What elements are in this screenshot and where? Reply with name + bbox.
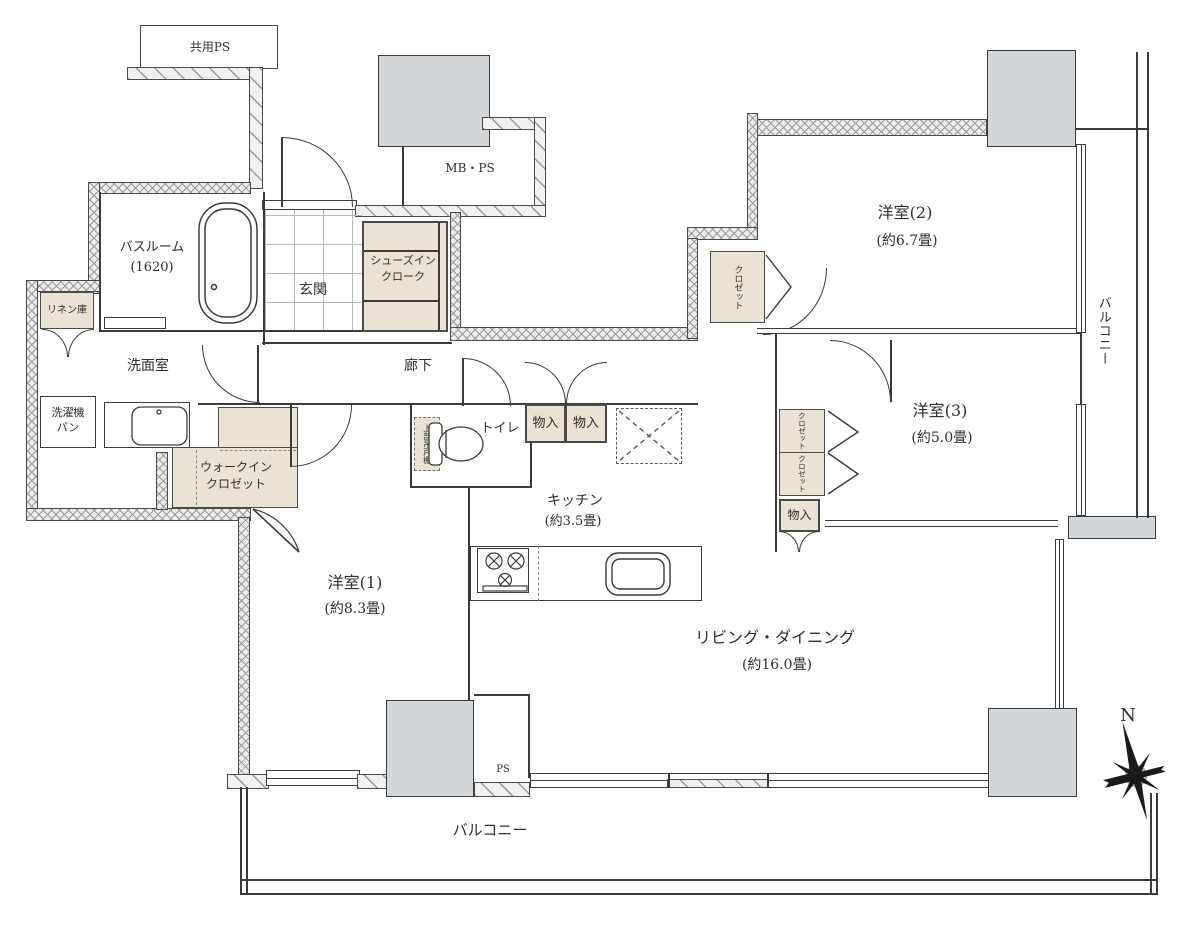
balcony-bottom-rail-b [240,893,1158,895]
compass-icon [1090,714,1176,828]
compass-north-label: N [1115,705,1141,727]
balcony-right-label: バルコニー [1094,283,1112,378]
balcony-bottom-rail-a [240,879,1158,881]
storage-a-door [525,362,566,404]
washroom-door-arc [202,345,260,403]
bedroom3-size-label: (約5.0畳) [887,430,997,447]
washer-pan-label-2: パン [40,421,96,434]
fridge-space [616,408,682,464]
mbps-left-wall [402,147,404,207]
toilet-upper-cabinet-label: 上部吊戸棚 [418,419,436,469]
linen-door-left [42,329,68,357]
balcony-left-rail-b [246,787,248,893]
balcony-right-rail-outer [1136,52,1138,518]
corridor-top-line [262,342,452,344]
wall-left-d [26,508,251,521]
balcony-divider-wall [1068,516,1156,539]
kitchen-label: キッチン [520,493,630,509]
bed3-storage-door-l [779,531,799,552]
wall-hatch-top-a [127,67,257,80]
entrance-label: 玄関 [268,282,358,299]
bedroom2-size-label: (約6.7畳) [852,233,962,250]
wic-label-2: クロゼット [175,477,297,491]
bedroom2-label: 洋室(2) [850,203,960,222]
ps-label: PS [478,763,528,776]
living-bottom-wall-seg [667,779,768,788]
bath-label: バスルーム [92,240,212,255]
toilet-wall-bottom [410,486,532,488]
storage-b-door [566,362,607,404]
floor-plan: 共用PS MB・PS バスルーム (1620) リネン庫 洗面室 洗濯機 パン … [0,0,1190,930]
bed1-wall-left [238,517,250,787]
bed3-window [1076,404,1086,516]
bed3-storage-door-r [799,531,819,552]
wic-label-1: ウォークイン [175,460,297,474]
wall-left-c [26,280,38,520]
common-ps-label: 共用PS [150,33,270,61]
wic-door-icon [253,509,299,552]
washer-pan-label-1: 洗濯機 [40,406,96,419]
bed3-bifold-icon [828,411,858,494]
shoes-shelf-1 [364,250,438,252]
living-size-label: (約16.0畳) [692,657,862,674]
ps-notch-right [528,694,530,778]
shoes-label-2: クローク [358,270,448,283]
bed3-closet-a-label: クロゼット [792,411,812,451]
bed2-wall-top [747,119,987,136]
window-divider-2 [767,773,769,788]
wall-left-e [156,452,168,510]
balcony-bottom-rail-r1 [1150,793,1152,895]
bath-wall-bottom [99,330,265,332]
bed2-wall-left-upper [747,113,758,234]
balcony-bottom-label: バルコニー [430,821,550,839]
bed3-storage: 物入 [779,499,820,532]
hallway-label: 廊下 [388,358,448,375]
bed1-bottom-wall-r [357,774,388,789]
bath-size-label: (1620) [92,260,212,275]
bed1-window [266,770,360,786]
storage-b: 物入 [565,404,607,443]
entrance-tiles [265,210,362,332]
bed3-closet-b-label: クロゼット [792,454,812,494]
living-right-window [1055,539,1064,709]
balcony-bottom-rail-r2 [1156,793,1158,895]
bed3-window-stub [1080,332,1082,406]
living-label: リビング・ダイニング [690,628,860,647]
bedroom1-size-label: (約8.3畳) [300,601,410,618]
bed1-door-arc [290,405,352,467]
counter-divider [538,546,540,601]
bed2-window [1076,144,1086,333]
pillar-top-center [378,55,490,147]
linen-closet: リネン庫 [40,292,94,329]
window-divider-1 [668,773,670,788]
mbps-wall-right [534,117,546,216]
entrance-step [265,330,362,332]
bed2-wall-left-lower [687,238,698,339]
pillar-top-right [987,50,1076,147]
wic-upper [218,407,298,449]
stove [477,548,529,593]
linen-door-right [68,329,94,357]
mbps-label: MB・PS [415,160,525,176]
kitchen-size-label: (約3.5畳) [518,514,628,529]
bed3-wall-left [775,334,777,552]
pillar-bottom-center [386,700,474,797]
shoes-shelf-2 [364,300,438,302]
storage-a: 物入 [525,404,566,443]
wall-genkan-right [450,212,461,338]
ps-notch-top [474,694,530,696]
pillar-bottom-right [988,708,1077,797]
balcony-right-rail-inner [1147,52,1149,518]
entry-door-arc [282,137,353,207]
ps-wall-bottom [474,782,530,797]
corridor-bottom-line [198,403,698,405]
wic-pipe-dash-h [220,450,296,452]
bed2-door-arc [763,268,827,335]
vanity-counter [104,402,190,448]
bath-wall-top [88,182,251,194]
toilet-wall-left [410,403,412,488]
bedroom3-label: 洋室(3) [885,401,995,420]
toilet-door-arc [463,358,511,406]
bed1-bottom-wall-l [227,774,269,789]
wall-corridor-top [450,327,698,341]
wall-hatch-top-b [249,67,263,189]
bed2-closet-label: クロゼット [726,255,748,319]
toilet-label: トイレ [472,420,528,437]
bed2-bed3-wall [757,328,1080,334]
washroom-label: 洗面室 [103,358,193,375]
bed3-wall-bottom [825,520,1058,527]
bed3-door-arc [830,340,891,402]
shoes-label-1: シューズイン [358,254,448,267]
bedroom1-label: 洋室(1) [300,573,410,592]
bath-door [104,317,166,329]
